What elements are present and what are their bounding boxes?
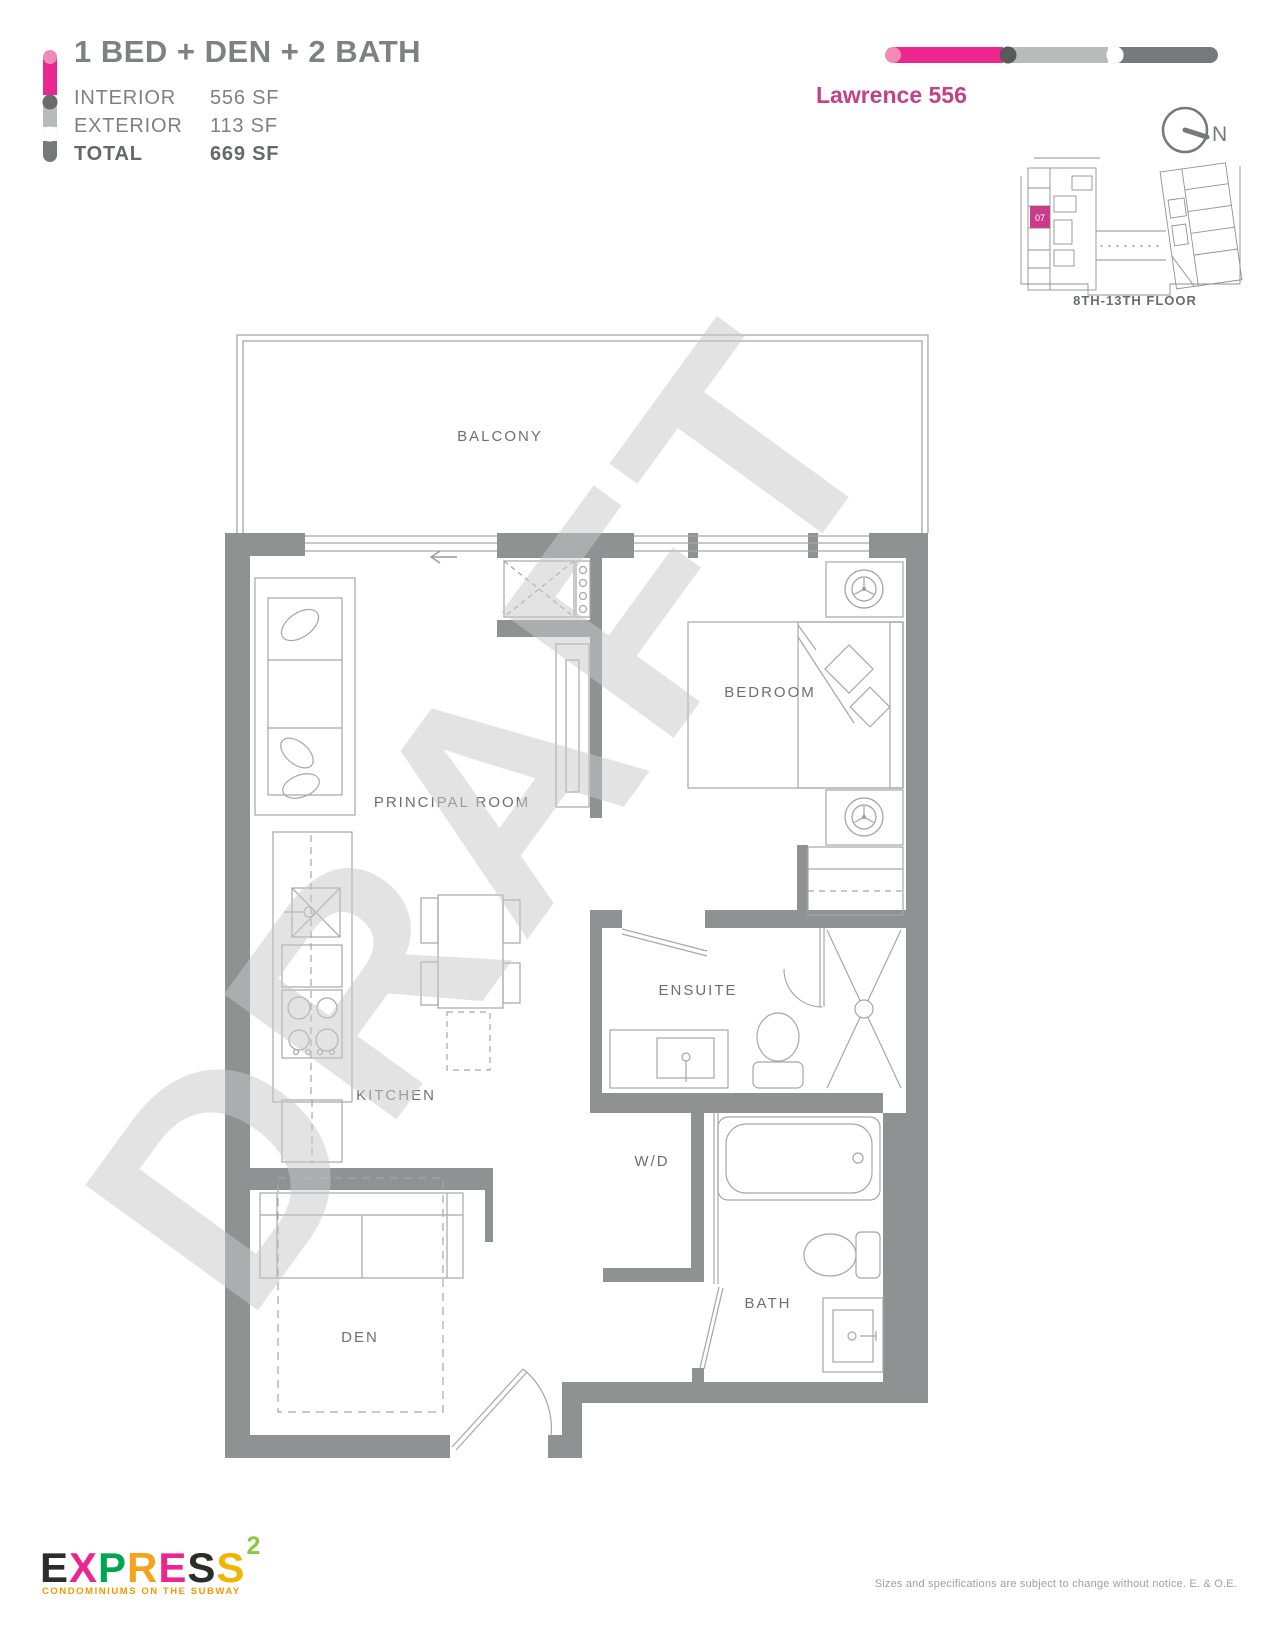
keyplan-diagram: 07 [1021, 158, 1242, 295]
ensuite-fixtures [610, 929, 803, 1088]
entry-door [452, 1369, 551, 1450]
keyplan-unit-number: 07 [1035, 213, 1045, 223]
compass-north-label: N [1212, 123, 1227, 146]
express2-logo: EXPRESS2 [40, 1538, 260, 1589]
floorplan-canvas: N 07 [0, 0, 1275, 1650]
room-label-bath: BATH [745, 1295, 792, 1312]
stat-row-total: TOTAL669 SF [74, 140, 279, 168]
plan-name: Lawrence 556 [816, 82, 967, 109]
unit-title: 1 BED + DEN + 2 BATH [74, 34, 421, 70]
room-label-balcony: BALCONY [457, 428, 543, 445]
bath-fixtures [700, 1113, 883, 1372]
disclaimer-text: Sizes and specifications are subject to … [875, 1578, 1237, 1590]
unit-stats: INTERIOR556 SF EXTERIOR113 SF TOTAL669 S… [74, 84, 279, 168]
room-label-den: DEN [341, 1329, 379, 1346]
floorplan-drawing: BALCONY PRINCIPAL ROOM BEDROOM ENSUITE K… [18, 264, 951, 1458]
vertical-accent-bar [43, 50, 58, 162]
logo-tagline: CONDOMINIUMS ON THE SUBWAY [42, 1586, 241, 1597]
bedroom-closet [808, 847, 903, 915]
horizontal-accent-bar [885, 47, 1218, 64]
stat-row-interior: INTERIOR556 SF [74, 84, 279, 112]
keyplan-right-tower [1160, 163, 1242, 289]
room-label-wd: W/D [634, 1153, 669, 1170]
compass-icon: N [1163, 108, 1227, 152]
keyplan-unit-highlight: 07 [1030, 206, 1050, 228]
logo-superscript: 2 [246, 1532, 261, 1560]
keyplan-floor-range: 8TH-13TH FLOOR [1028, 293, 1242, 308]
room-label-ensuite: ENSUITE [658, 982, 737, 999]
hvac-unit-bottom [826, 790, 903, 845]
balcony-door-arrow-icon [431, 551, 457, 563]
stat-row-exterior: EXTERIOR113 SF [74, 112, 279, 140]
